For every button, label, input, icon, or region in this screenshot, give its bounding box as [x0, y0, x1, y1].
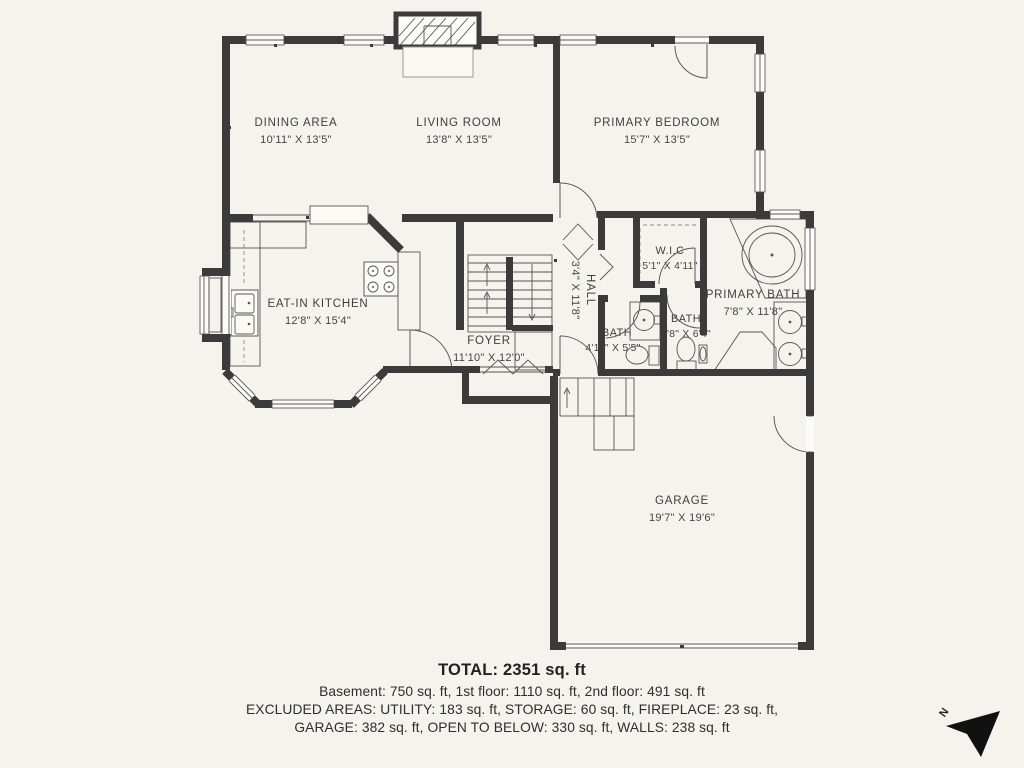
room-dims: 5'1" X 4'11"	[642, 261, 697, 272]
room-name: LIVING ROOM	[416, 117, 501, 129]
room-label-living: LIVING ROOM 13'8" X 13'5"	[416, 117, 501, 146]
room-dims: 19'7" X 19'6"	[649, 512, 715, 524]
stairs-to-garage	[560, 378, 634, 450]
floor-areas: Basement: 750 sq. ft, 1st floor: 1110 sq…	[0, 683, 1024, 701]
room-dims: 11'10" X 12'0"	[453, 352, 525, 364]
room-name: DINING AREA	[255, 117, 338, 129]
floor-plan-svg: BATH 4'11" X 5'5" BATH 4'8" X 6'4"	[0, 0, 1024, 768]
room-label-dining: DINING AREA 10'11" X 13'5"	[255, 117, 338, 146]
room-name: EAT-IN KITCHEN	[267, 298, 368, 310]
room-label-primary-bedroom: PRIMARY BEDROOM 15'7" X 13'5"	[594, 117, 721, 146]
room-name: HALL	[584, 274, 596, 306]
excluded-areas-1: EXCLUDED AREAS: UTILITY: 183 sq. ft, STO…	[0, 701, 1024, 719]
room-label-kitchen: EAT-IN KITCHEN 12'8" X 15'4"	[267, 298, 368, 327]
room-label-foyer: FOYER 11'10" X 12'0"	[453, 335, 525, 364]
room-name: GARAGE	[655, 495, 709, 507]
hearth	[403, 47, 473, 77]
room-name: FOYER	[467, 335, 511, 347]
total-area: TOTAL: 2351 sq. ft	[0, 661, 1024, 680]
room-name: PRIMARY BEDROOM	[594, 117, 721, 129]
room-name: PRIMARY BATH	[706, 289, 801, 301]
room-label-garage: GARAGE 19'7" X 19'6"	[649, 495, 715, 524]
room-name: W.I.C	[656, 245, 685, 257]
fireplace-icon	[396, 14, 479, 77]
bath2-fixtures	[677, 337, 707, 371]
corner-tub-icon	[730, 219, 806, 298]
room-name: BATH	[671, 313, 701, 325]
room-dims: 3'4" X 11'8"	[569, 261, 581, 320]
floor-plan-page: BATH 4'11" X 5'5" BATH 4'8" X 6'4"	[0, 0, 1024, 768]
excluded-areas-2: GARAGE: 382 sq. ft, OPEN TO BELOW: 330 s…	[0, 719, 1024, 737]
room-dims: 12'8" X 15'4"	[285, 315, 351, 327]
room-label-hall: HALL 3'4" X 11'8"	[569, 261, 596, 320]
room-label-primary-bath: PRIMARY BATH 7'8" X 11'8"	[706, 289, 801, 318]
room-dims: 13'8" X 13'5"	[426, 134, 492, 146]
room-label-bath-1: BATH 4'11" X 5'5"	[585, 327, 640, 354]
area-summary: TOTAL: 2351 sq. ft Basement: 750 sq. ft,…	[0, 661, 1024, 737]
room-dims: 4'11" X 5'5"	[585, 343, 640, 354]
room-dims: 10'11" X 13'5"	[260, 134, 332, 146]
stove-icon	[364, 262, 398, 296]
room-dims: 15'7" X 13'5"	[624, 134, 690, 146]
shower-icon	[712, 332, 776, 374]
room-dims: 7'8" X 11'8"	[724, 306, 783, 318]
kitchen-sink	[228, 290, 258, 336]
